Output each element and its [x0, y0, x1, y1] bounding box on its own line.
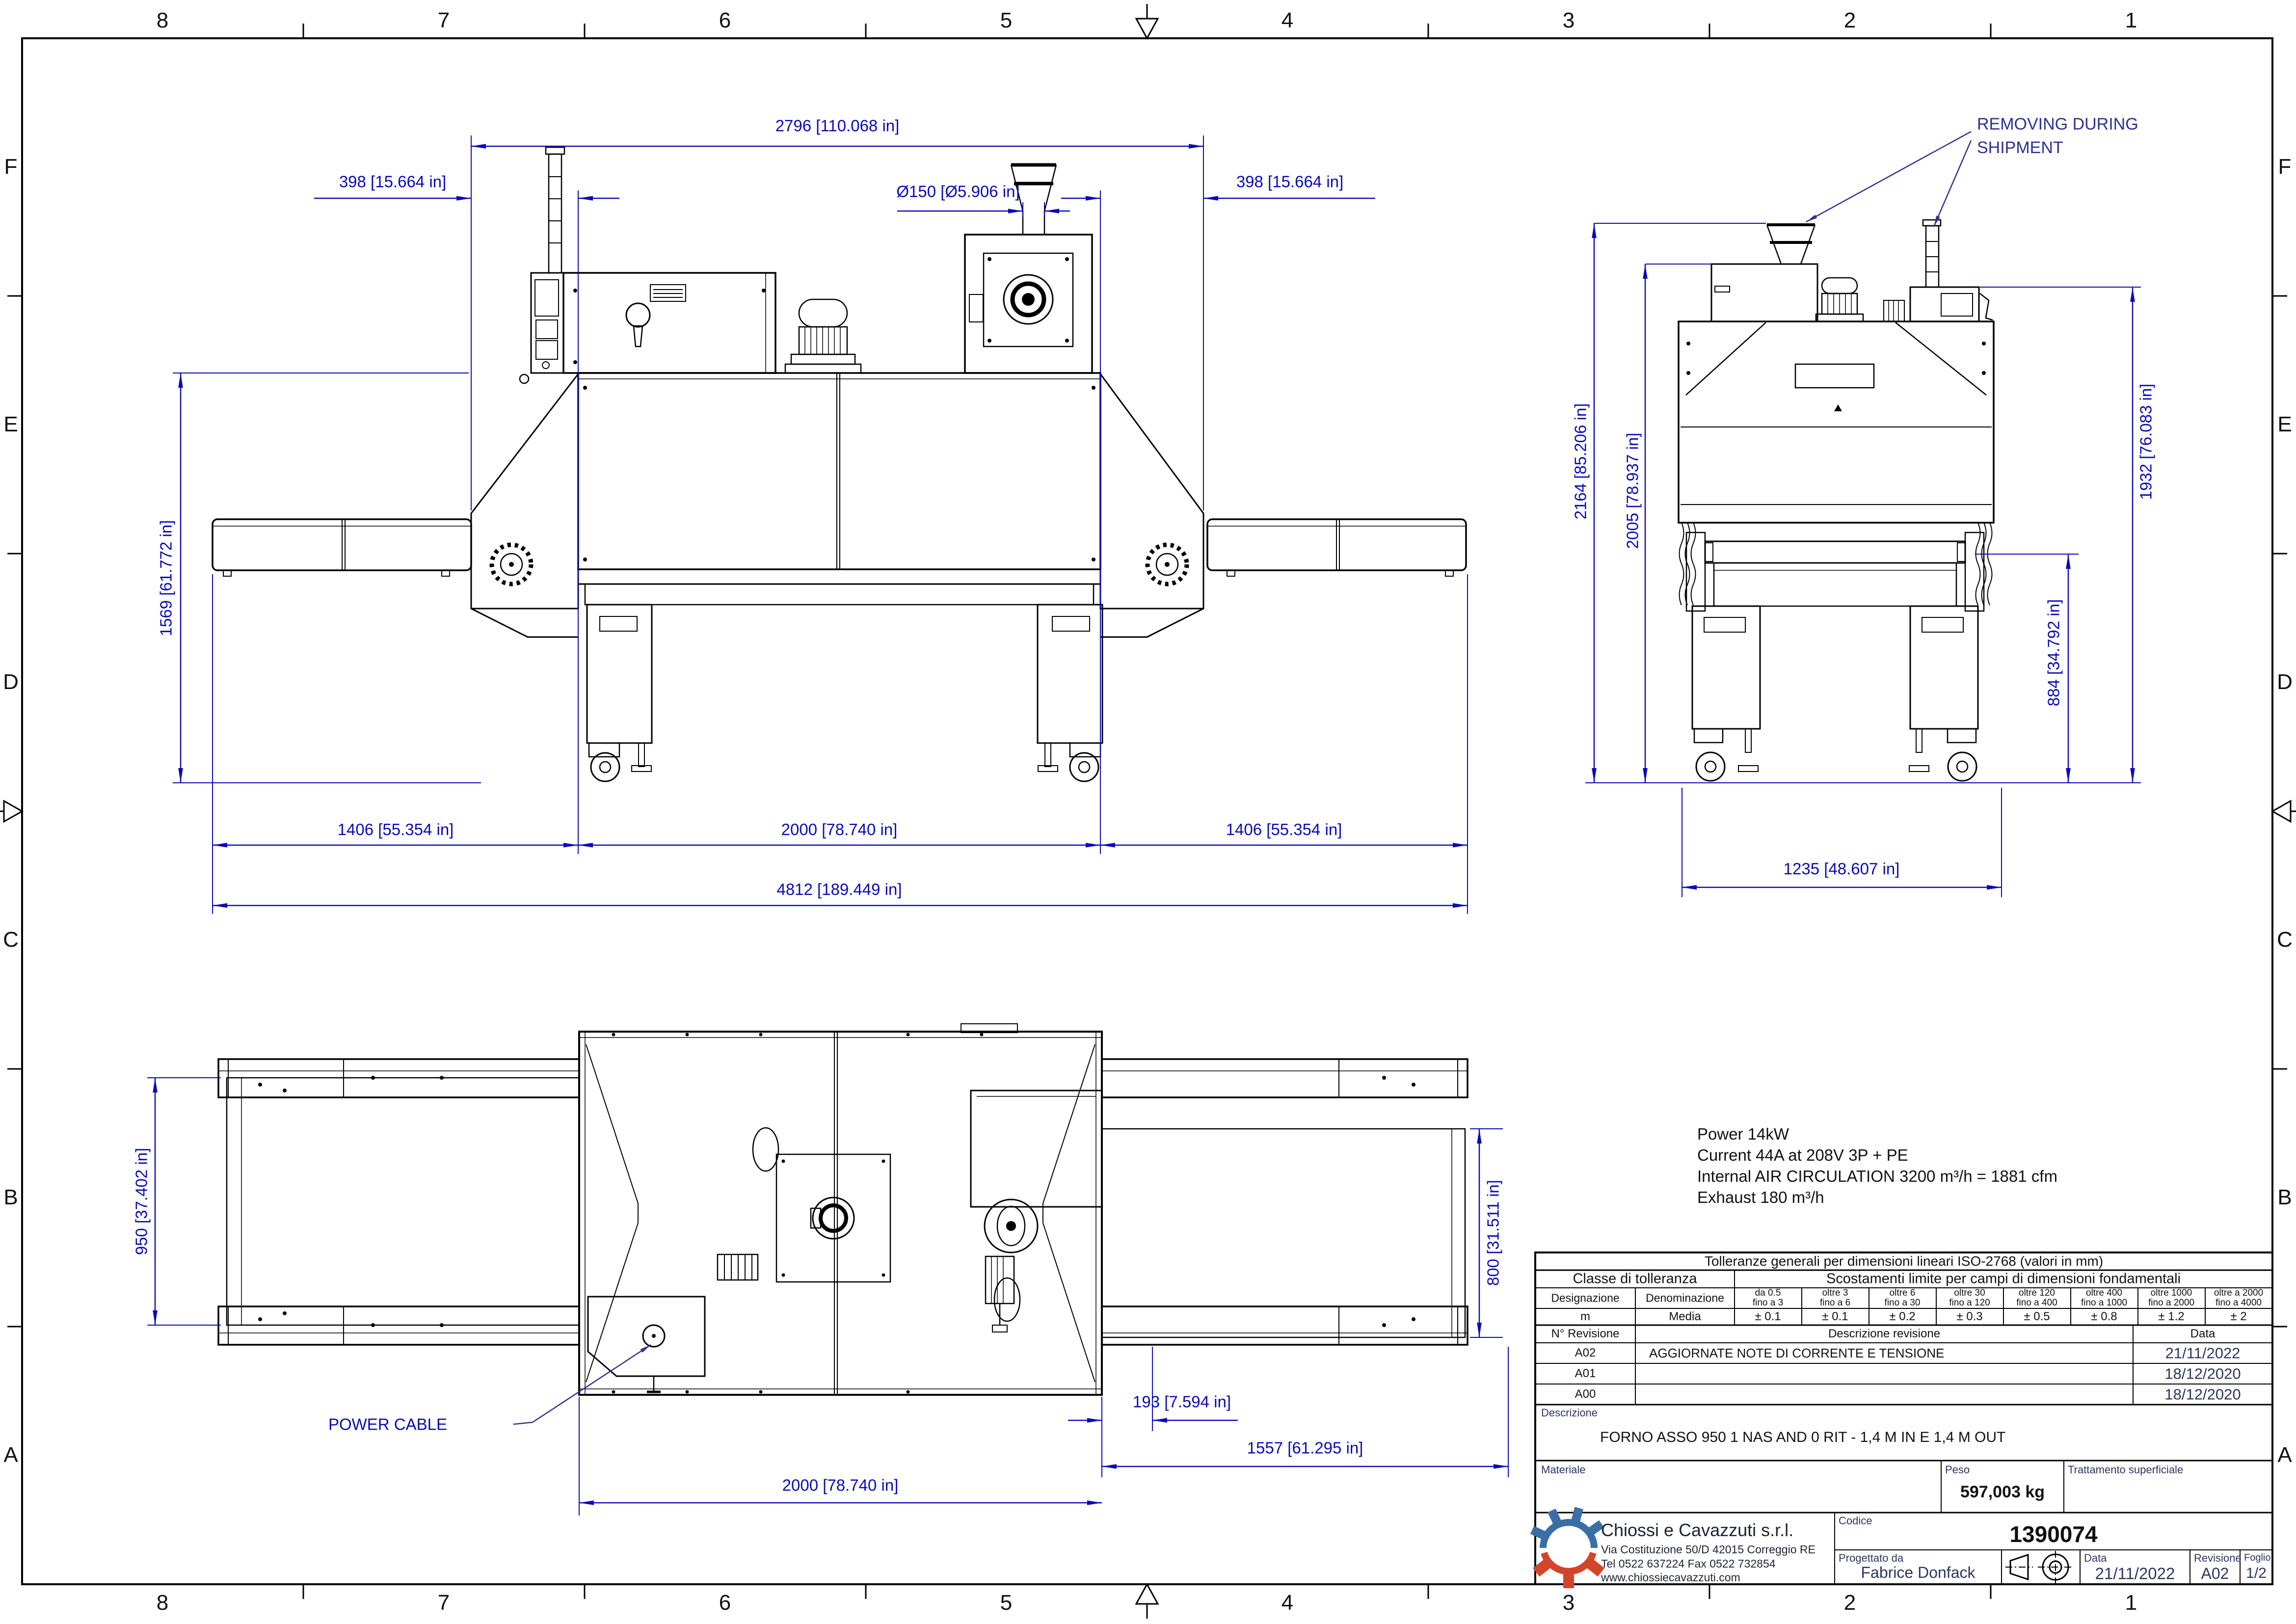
note-circulation: Internal AIR CIRCULATION 3200 m³/h = 188…: [1697, 1168, 2057, 1184]
removing-shipment-label-line2: SHIPMENT: [1977, 139, 2063, 156]
grid-col-label: 7: [438, 10, 450, 31]
dim-plan-belt-out: 800 [31.511 in]: [1485, 1180, 1501, 1286]
dim-side-hbelt: 884 [34.792 in]: [2046, 599, 2062, 706]
dim-front-oven: 2000 [78.740 in]: [781, 822, 898, 838]
drawing-sheet: 8 7 6 5 4 3 2 1 8 7 6 5 4 3 2 1 F E D C …: [0, 0, 2296, 1624]
caster-wheel-icon: [1909, 729, 1976, 781]
grid-row-label: C: [2277, 929, 2293, 951]
dim-front-top-width: 2796 [110.068 in]: [775, 118, 900, 134]
tolerance-limits-header: Scostamenti limite per campi di dimensio…: [1826, 1272, 2181, 1286]
tolerance-row-denominazione: Media: [1669, 1311, 1701, 1323]
tolerance-value: ± 0.2: [1889, 1311, 1915, 1323]
fan-inlet-icon: [1004, 275, 1053, 324]
tolerance-class-header: Classe di tolleranza: [1573, 1272, 1697, 1286]
grid-col-label: 2: [1844, 10, 1856, 31]
projection-symbol-icon: [2005, 1551, 2073, 1583]
revision-num: A02: [1575, 1347, 1596, 1359]
revision-date: 21/11/2022: [2165, 1346, 2241, 1361]
range-line: fino a 1000: [2081, 1298, 2127, 1308]
dim-front-belt-height: 1569 [61.772 in]: [158, 520, 174, 637]
sprocket-icon: [492, 545, 531, 584]
grid-row-label: B: [2277, 1187, 2292, 1208]
revision-num: A00: [1575, 1388, 1596, 1400]
revision-date: 18/12/2020: [2164, 1387, 2241, 1402]
exhaust-funnel-icon: [1767, 225, 1815, 264]
frame-ticks: [7, 24, 2287, 1599]
revisione-value: A02: [2201, 1566, 2229, 1581]
tolerance-row-designazione: m: [1580, 1311, 1590, 1323]
revision-date: 18/12/2020: [2164, 1366, 2241, 1382]
caster-wheel-icon: [1694, 729, 1758, 781]
tolerance-value: ± 0.8: [2091, 1311, 2117, 1323]
tolerance-value: ± 2: [2230, 1311, 2246, 1323]
signal-tower-icon: [546, 147, 564, 273]
revision-header-date: Data: [2190, 1328, 2216, 1340]
caster-wheel-icon: [1038, 743, 1100, 781]
grid-col-label: 8: [157, 1592, 168, 1614]
bellows-icon: [1680, 523, 1992, 605]
peso-label: Peso: [1945, 1464, 1970, 1475]
grid-row-label: D: [2277, 671, 2293, 693]
grid-row-label: F: [4, 156, 18, 178]
grid-col-label: 4: [1281, 10, 1293, 31]
front-view-drawing: [213, 147, 1466, 781]
tolerance-value: ± 1.2: [2158, 1311, 2184, 1323]
grid-col-label: 1: [2125, 10, 2137, 31]
range-line: da 0.5: [1753, 1288, 1783, 1298]
descrizione-label: Descrizione: [1541, 1408, 1598, 1418]
side-view-drawing: [1679, 220, 1994, 781]
company-address: Via Costituzione 50/D 42015 Correggio RE: [1601, 1544, 1815, 1555]
note-power: Power 14kW: [1697, 1126, 1789, 1142]
grid-col-label: 3: [1563, 10, 1575, 31]
foglio-value: 1/2: [2246, 1566, 2267, 1581]
dim-side-base-width: 1235 [48.607 in]: [1784, 861, 1900, 877]
range-line: oltre 3: [1820, 1288, 1850, 1298]
tolerance-value: ± 0.1: [1755, 1311, 1781, 1323]
range-line: fino a 3: [1753, 1298, 1783, 1308]
center-marker-icons: [0, 4, 2296, 1619]
tolerance-value: ± 0.5: [2024, 1311, 2050, 1323]
grid-row-label: E: [2277, 414, 2292, 435]
company-phone: Tel 0522 637224 Fax 0522 732854: [1601, 1558, 1776, 1570]
note-current: Current 44A at 208V 3P + PE: [1697, 1147, 1908, 1163]
range-line: fino a 120: [1949, 1298, 1990, 1308]
range-line: fino a 30: [1885, 1298, 1921, 1308]
motor-icon: [785, 299, 861, 373]
tolerance-range: oltre 400fino a 1000: [2081, 1288, 2127, 1308]
grid-row-label: C: [3, 929, 19, 951]
dim-side-hmax: 2164 [85.206 in]: [1573, 403, 1589, 520]
dim-front-offset-left: 398 [15.664 in]: [339, 174, 446, 190]
grid-col-label: 4: [1281, 1592, 1293, 1614]
grid-row-label: A: [3, 1444, 18, 1466]
grid-col-label: 8: [157, 10, 168, 31]
foglio-label: Foglio: [2244, 1553, 2270, 1563]
company-website: www.chiossiecavazzuti.com: [1601, 1572, 1740, 1583]
removing-shipment-label-line1: REMOVING DURING: [1977, 116, 2138, 133]
revision-num: A01: [1575, 1368, 1596, 1380]
dim-plan-oven: 2000 [78.740 in]: [782, 1477, 899, 1493]
progettato-value: Fabrice Donfack: [1861, 1565, 1976, 1580]
leader-lines: [513, 132, 1971, 1424]
key-switch-icon: [626, 303, 650, 346]
dim-side-hblower: 1932 [76.083 in]: [2138, 384, 2154, 500]
dim-front-infeed: 1406 [55.354 in]: [338, 822, 454, 838]
grid-col-label: 7: [438, 1592, 450, 1614]
materiale-label: Materiale: [1541, 1464, 1585, 1475]
grid-col-label: 3: [1563, 1592, 1575, 1614]
tolerance-col-denominazione: Denominazione: [1646, 1293, 1724, 1304]
range-line: oltre 30: [1949, 1288, 1990, 1298]
tolerance-range: oltre 3fino a 6: [1820, 1288, 1850, 1308]
drawing-canvas: [0, 0, 2296, 1624]
dim-front-total: 4812 [189.449 in]: [776, 881, 902, 898]
range-line: fino a 4000: [2214, 1298, 2263, 1308]
grid-col-label: 6: [719, 10, 731, 31]
revision-header-desc: Descrizione revisione: [1828, 1328, 1940, 1340]
sprocket-icon: [1148, 545, 1187, 584]
grid-row-label: E: [3, 414, 18, 435]
grid-col-label: 1: [2125, 1592, 2137, 1614]
revision-desc: AGGIORNATE NOTE DI CORRENTE E TENSIONE: [1649, 1347, 1944, 1359]
company-logo: [1530, 1507, 1604, 1588]
tolerance-range: oltre a 2000fino a 4000: [2214, 1288, 2263, 1308]
range-line: oltre 120: [2016, 1288, 2057, 1298]
grid-col-label: 2: [1844, 1592, 1856, 1614]
grid-row-label: B: [3, 1187, 18, 1208]
range-line: oltre 6: [1885, 1288, 1921, 1298]
tolerance-range: oltre 6fino a 30: [1885, 1288, 1921, 1308]
range-line: oltre 1000: [2148, 1288, 2194, 1298]
grid-row-label: F: [2278, 156, 2292, 178]
note-exhaust: Exhaust 180 m³/h: [1697, 1189, 1824, 1205]
progettato-label: Progettato da: [1839, 1553, 1903, 1564]
dim-plan-offset: 193 [7.594 in]: [1133, 1394, 1231, 1410]
dim-plan-outfeed-total: 1557 [61.295 in]: [1247, 1440, 1363, 1456]
grid-col-label: 6: [719, 1592, 731, 1614]
peso-value: 597,003 kg: [1960, 1484, 2045, 1500]
codice-value: 1390074: [2009, 1523, 2097, 1545]
sheet-frame: [0, 4, 2296, 1619]
range-line: oltre a 2000: [2214, 1288, 2263, 1298]
range-line: oltre 400: [2081, 1288, 2127, 1298]
revision-header-num: N° Revisione: [1551, 1328, 1620, 1340]
grid-col-label: 5: [1000, 10, 1012, 31]
range-line: fino a 400: [2016, 1298, 2057, 1308]
codice-label: Codice: [1839, 1516, 1872, 1526]
tolerance-range: oltre 120fino a 400: [2016, 1288, 2057, 1308]
plan-view-drawing: [218, 1024, 1468, 1395]
dim-front-offset-right: 398 [15.664 in]: [1236, 174, 1343, 190]
grid-row-label: A: [2277, 1444, 2292, 1466]
motor-icon: [1816, 278, 1863, 321]
dim-plan-belt-in: 950 [37.402 in]: [133, 1148, 150, 1255]
trattamento-label: Trattamento superficiale: [2068, 1464, 2183, 1475]
grid-col-label: 5: [1000, 1592, 1012, 1614]
tolerance-title: Tolleranze generali per dimensioni linea…: [1705, 1254, 2103, 1268]
revisione-label: Revisione: [2194, 1553, 2242, 1564]
tolerance-col-designazione: Designazione: [1551, 1293, 1619, 1304]
grid-row-label: D: [3, 671, 19, 693]
dim-front-duct: Ø150 [Ø5.906 in]: [896, 184, 1019, 200]
descrizione-value: FORNO ASSO 950 1 NAS AND 0 RIT - 1,4 M I…: [1600, 1430, 2005, 1445]
tolerance-value: ± 0.1: [1822, 1311, 1848, 1323]
data-value: 21/11/2022: [2095, 1566, 2175, 1582]
dim-side-hcabinet: 2005 [78.937 in]: [1625, 433, 1641, 549]
data-label: Data: [2084, 1553, 2107, 1564]
tolerance-range: oltre 1000fino a 2000: [2148, 1288, 2194, 1308]
tolerance-range: da 0.5fino a 3: [1753, 1288, 1783, 1308]
range-line: fino a 2000: [2148, 1298, 2194, 1308]
tolerance-range: oltre 30fino a 120: [1949, 1288, 1990, 1308]
tolerance-value: ± 0.3: [1956, 1311, 1982, 1323]
power-cable-label: POWER CABLE: [328, 1416, 447, 1433]
signal-tower-icon: [1923, 220, 1941, 287]
caster-wheel-icon: [589, 743, 651, 781]
range-line: fino a 6: [1820, 1298, 1850, 1308]
company-name: Chiossi e Cavazzuti s.r.l.: [1601, 1521, 1793, 1539]
dim-front-outfeed: 1406 [55.354 in]: [1226, 822, 1342, 838]
